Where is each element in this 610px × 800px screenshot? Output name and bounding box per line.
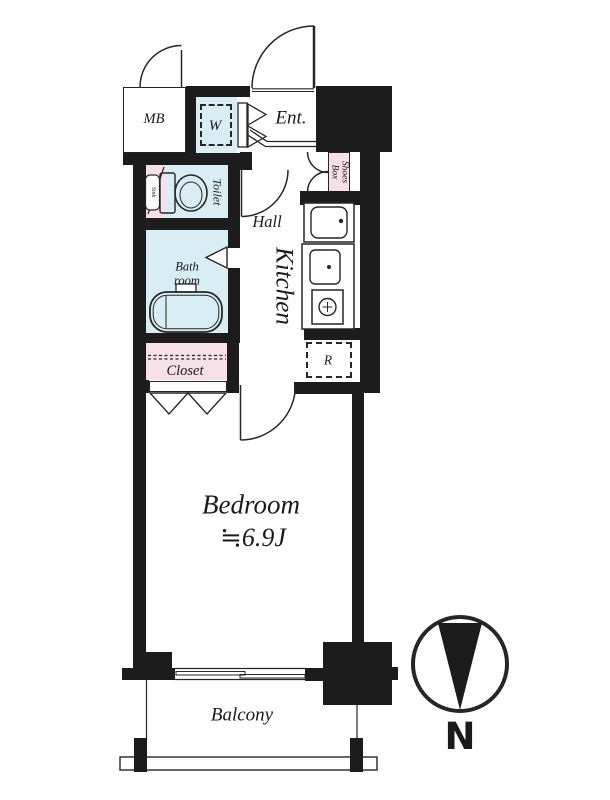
label-washer: W: [209, 118, 222, 134]
label-shoes-box-line1: Shoes: [339, 161, 349, 183]
toilet-door-swing-icon: [242, 170, 289, 217]
label-bathroom-line2: room: [174, 274, 200, 288]
label-kitchen: Kitchen: [271, 247, 298, 325]
label-toilet: Toilet: [211, 179, 224, 206]
bedroom-door-swing-icon: [241, 385, 296, 440]
label-shoes-box: Shoes Box: [329, 161, 350, 183]
label-hall: Hall: [252, 213, 281, 231]
compass-icon: [413, 617, 507, 711]
kitchen-counter-icon: [302, 203, 354, 329]
bath-door-icon: [206, 247, 227, 268]
label-balcony: Balcony: [211, 706, 273, 727]
shoesbox-door-swing-icon: [308, 152, 329, 192]
label-entrance: Ent.: [275, 109, 306, 130]
toilet-fixture-icon: [160, 173, 207, 213]
label-fridge: R: [324, 354, 332, 369]
washer-folding-door-icon: [238, 103, 266, 147]
label-compass-north: N: [445, 717, 476, 757]
floor-plan: MB W Ent. Shoes Box Toilet Sink Hall Kit…: [0, 0, 610, 800]
label-bedroom-size: ≒6.9J: [220, 524, 286, 552]
label-shoes-box-line2: Box: [329, 161, 339, 183]
front-door-swing-icon: [252, 26, 314, 92]
label-closet: Closet: [166, 364, 203, 380]
sliding-window-icon: [175, 669, 305, 680]
closet-rod-icon: [148, 356, 226, 360]
mb-door-swing-icon: [140, 46, 182, 88]
label-sink: Sink: [149, 187, 155, 197]
label-bedroom: Bedroom: [202, 490, 300, 519]
label-bathroom: Bath room: [174, 261, 200, 288]
bathtub-icon: [150, 284, 222, 332]
closet-folding-door-icon: [150, 393, 226, 414]
label-bathroom-line1: Bath: [174, 261, 200, 275]
label-meter-box: MB: [144, 112, 165, 128]
